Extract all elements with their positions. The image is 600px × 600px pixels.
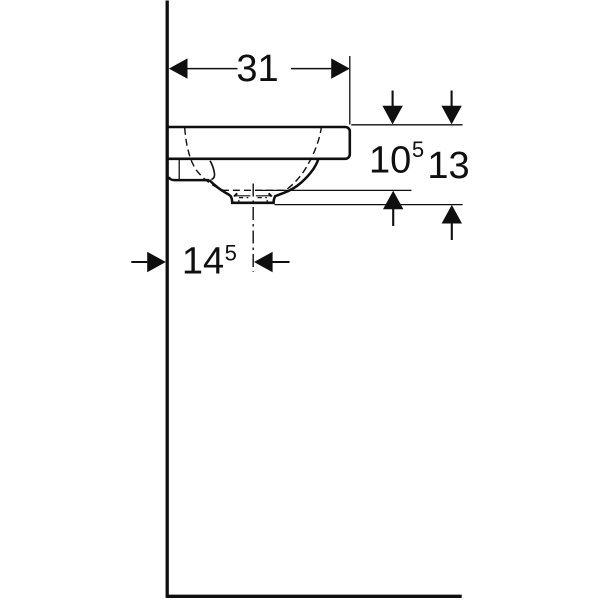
svg-text:14: 14 bbox=[182, 241, 224, 283]
svg-text:13: 13 bbox=[427, 145, 469, 187]
svg-text:31: 31 bbox=[236, 48, 278, 90]
svg-text:10: 10 bbox=[369, 140, 411, 182]
svg-text:5: 5 bbox=[412, 137, 424, 162]
svg-text:5: 5 bbox=[225, 241, 237, 266]
